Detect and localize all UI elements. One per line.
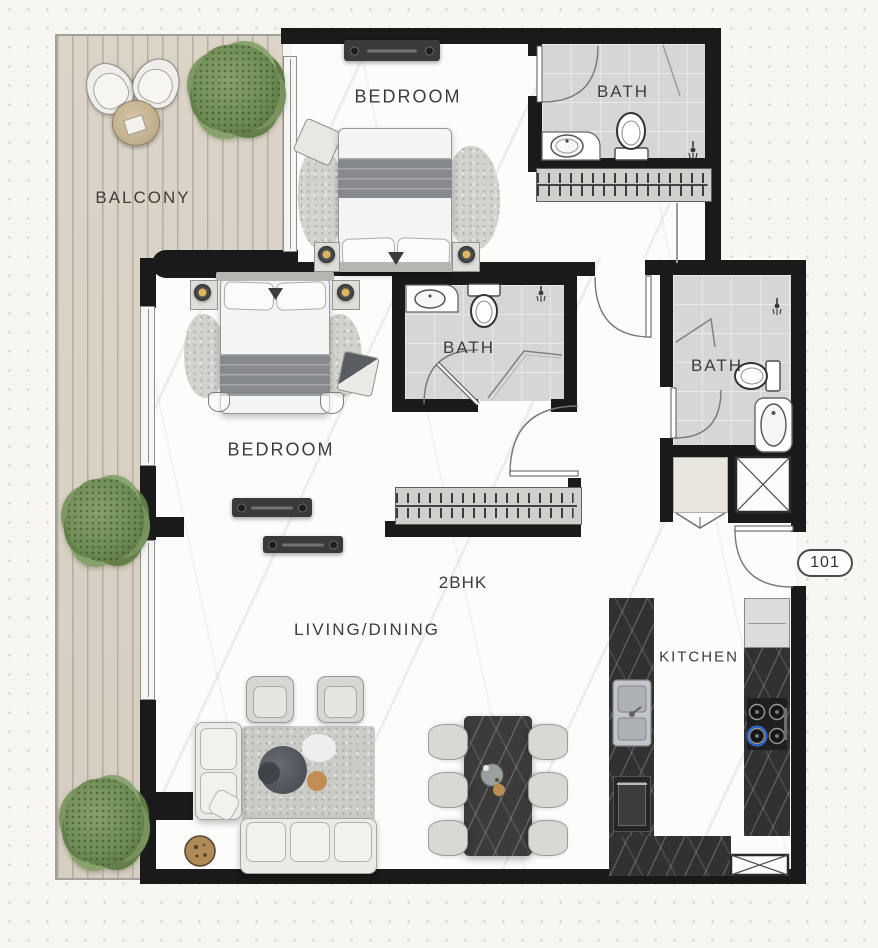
shower-glass-line (488, 351, 562, 401)
unit-number-badge: 101 (797, 549, 853, 577)
room-label-living-dining: LIVING/DINING (294, 620, 440, 640)
shower-head-icon (773, 298, 781, 315)
bed-decor (268, 288, 283, 300)
unit-type-label: 2BHK (439, 573, 487, 593)
sink-icon (406, 285, 458, 312)
room-label-bedroom-top: BEDROOM (354, 87, 461, 108)
door-bath-top (537, 46, 598, 102)
shower-head-icon (537, 286, 545, 302)
room-label-kitchen: KITCHEN (659, 649, 739, 666)
toilet-icon (615, 113, 648, 160)
room-label-balcony: BALCONY (95, 188, 190, 208)
bed-decor (388, 252, 404, 265)
door-bath-right (671, 388, 721, 438)
room-label-bedroom-mid: BEDROOM (227, 440, 334, 461)
side-table-icon (185, 836, 215, 866)
bathtub-icon (755, 398, 792, 452)
room-label-bath-top: BATH (597, 82, 649, 102)
kitchen-sink-icon (613, 680, 651, 746)
floor-plan-canvas: BALCONY BEDROOM BATH BEDROOM BATH BATH 2… (0, 0, 878, 948)
door-bedroom-mid (510, 406, 578, 476)
shaft-x-icon (731, 855, 788, 875)
shower-head-icon (689, 141, 697, 159)
plan-detail-overlay (0, 0, 878, 948)
sink-icon (542, 132, 600, 160)
room-label-bath-mid: BATH (443, 338, 495, 358)
room-label-bath-right: BATH (691, 356, 743, 376)
door-bath-mid (424, 350, 478, 404)
bifold-door-icon (676, 513, 725, 528)
stove-burners-icon (748, 705, 788, 746)
door-corridor (595, 276, 651, 337)
shaft-x-icon (736, 457, 790, 512)
toilet-icon (468, 284, 500, 327)
dining-table-decor (481, 764, 505, 796)
door-entrance (735, 526, 793, 587)
shower-glass-line (676, 319, 715, 347)
